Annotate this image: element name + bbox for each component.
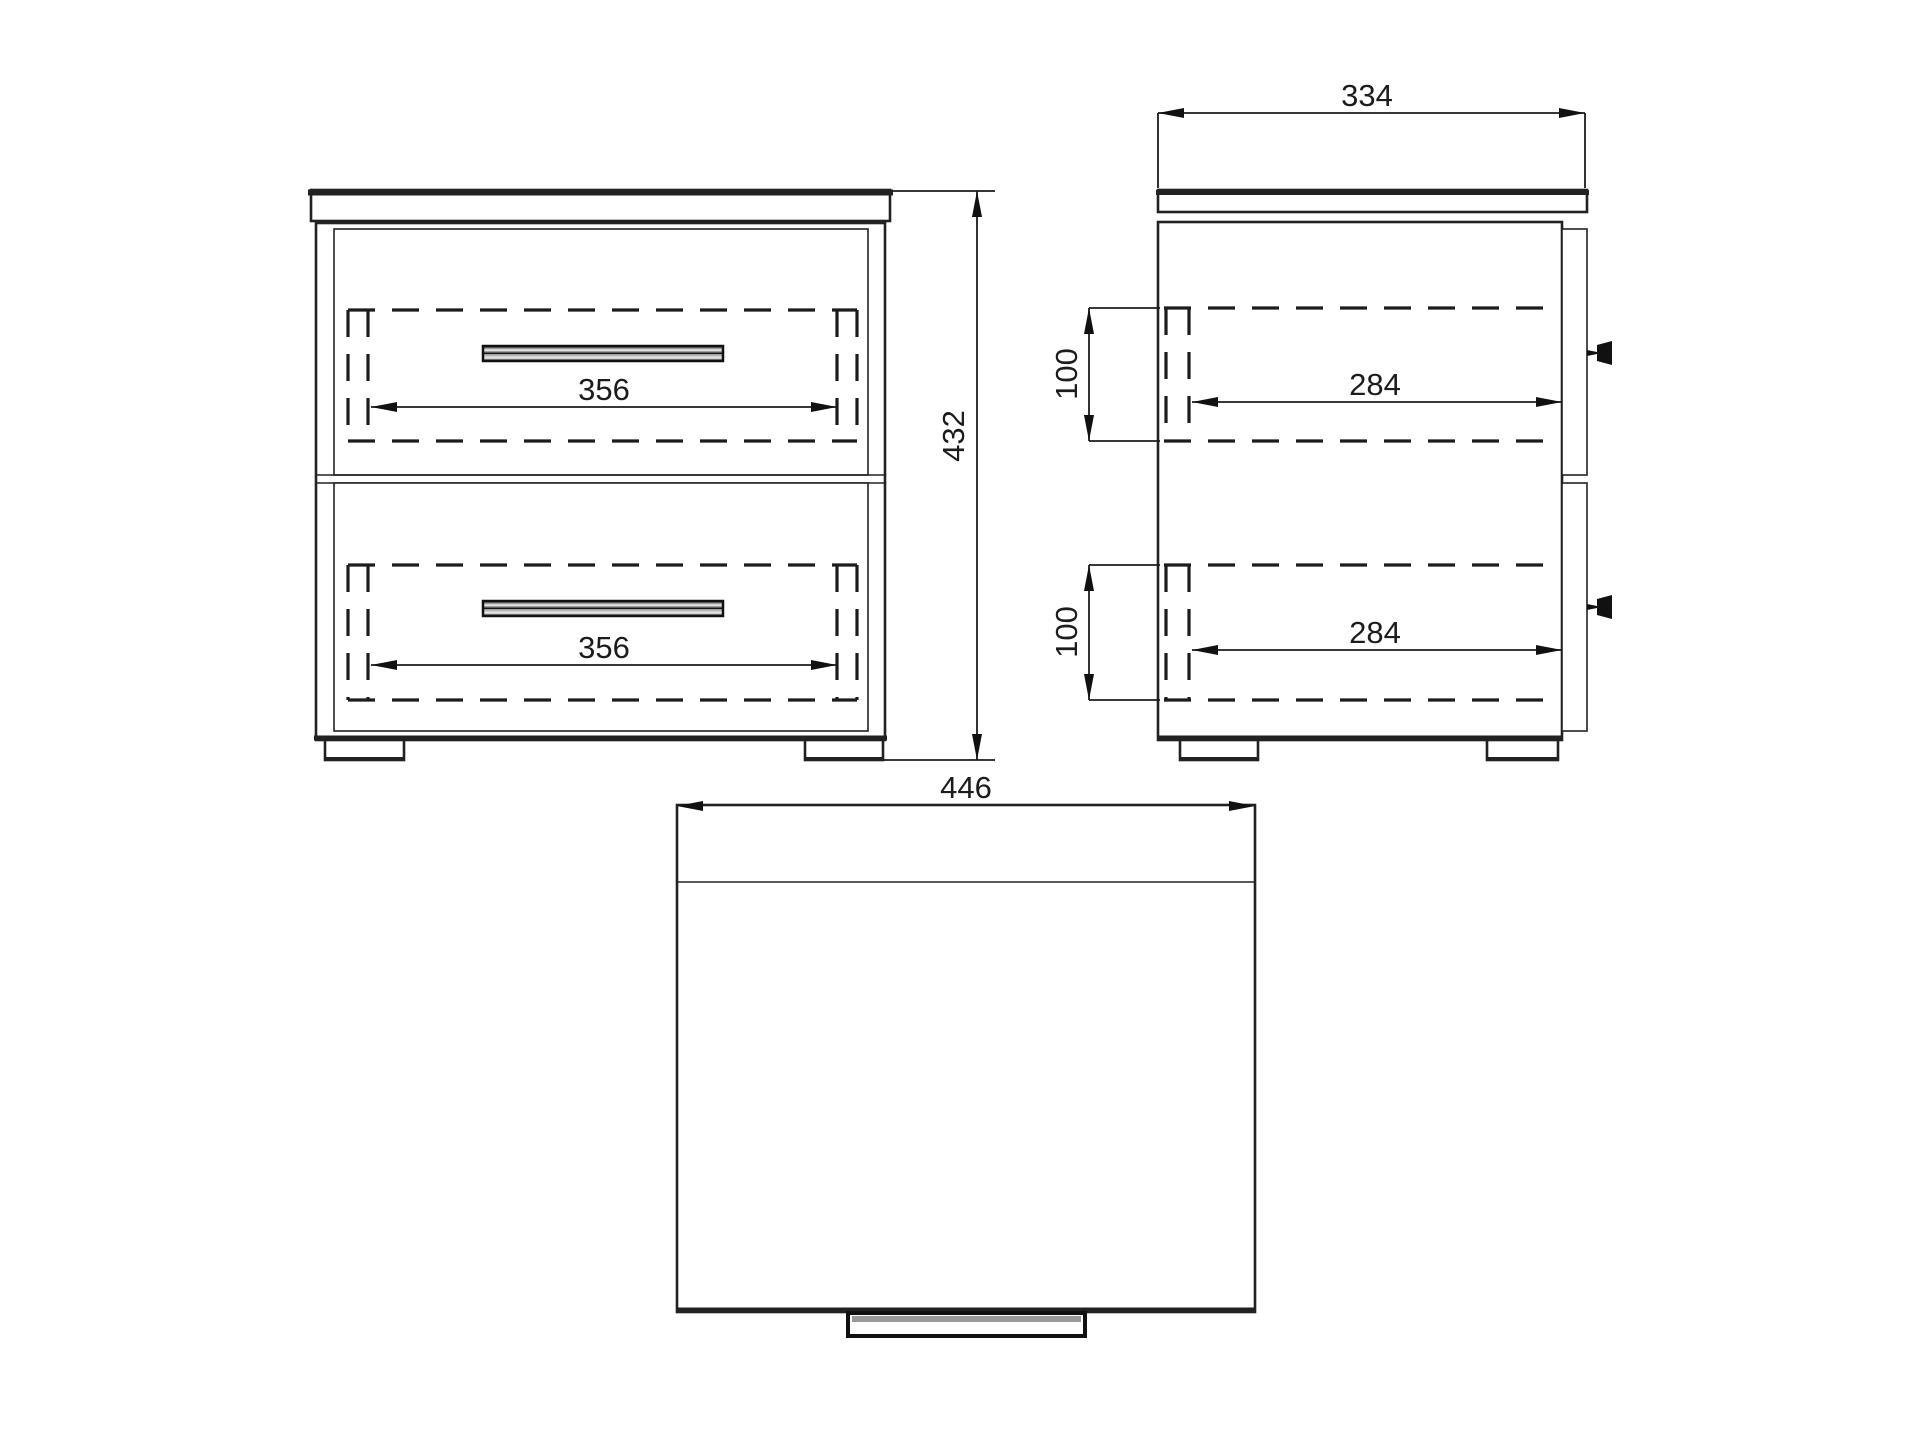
dim-label: 334 [1341, 78, 1393, 113]
dimension-side-overall-depth: 334 [1158, 78, 1585, 188]
arrowhead-up [972, 191, 982, 217]
arrowhead-up [1084, 565, 1094, 591]
dim-label: 446 [940, 770, 992, 805]
side-drawer-front-1 [1562, 229, 1587, 475]
dim-label: 100 [1049, 606, 1084, 658]
dim-label: 356 [578, 630, 630, 665]
arrowhead-right [1559, 108, 1585, 118]
dim-label: 100 [1049, 348, 1084, 400]
dimension-front-overall-height: 432 [883, 191, 995, 760]
dim-label: 284 [1349, 615, 1401, 650]
side-body [1158, 222, 1562, 740]
top-outline [677, 805, 1255, 1312]
drawer-handle-2 [483, 601, 723, 616]
dim-label: 284 [1349, 367, 1401, 402]
arrowhead-down [1084, 674, 1094, 700]
arrowhead-left [1158, 108, 1184, 118]
dim-label: 356 [578, 372, 630, 407]
side-drawer-front-2 [1562, 483, 1587, 731]
dimension-side-drawer1-height: 100 [1049, 308, 1160, 441]
drawing-svg: 356 356 432 [0, 0, 1920, 1440]
front-view: 356 356 432 [308, 190, 995, 760]
drawer-knob-2 [1587, 595, 1612, 619]
arrowhead-down [1084, 415, 1094, 441]
dim-label: 432 [936, 410, 971, 462]
drawer-handle-1 [483, 346, 723, 361]
top-view: 446 [677, 770, 1255, 1336]
technical-drawing-page: 356 356 432 [0, 0, 1920, 1440]
arrowhead-down [972, 734, 982, 760]
side-view: 334 100 100 284 [1049, 78, 1612, 760]
arrowhead-up [1084, 308, 1094, 334]
drawer-knob-1 [1587, 341, 1612, 365]
dimension-side-drawer2-height: 100 [1049, 565, 1160, 700]
